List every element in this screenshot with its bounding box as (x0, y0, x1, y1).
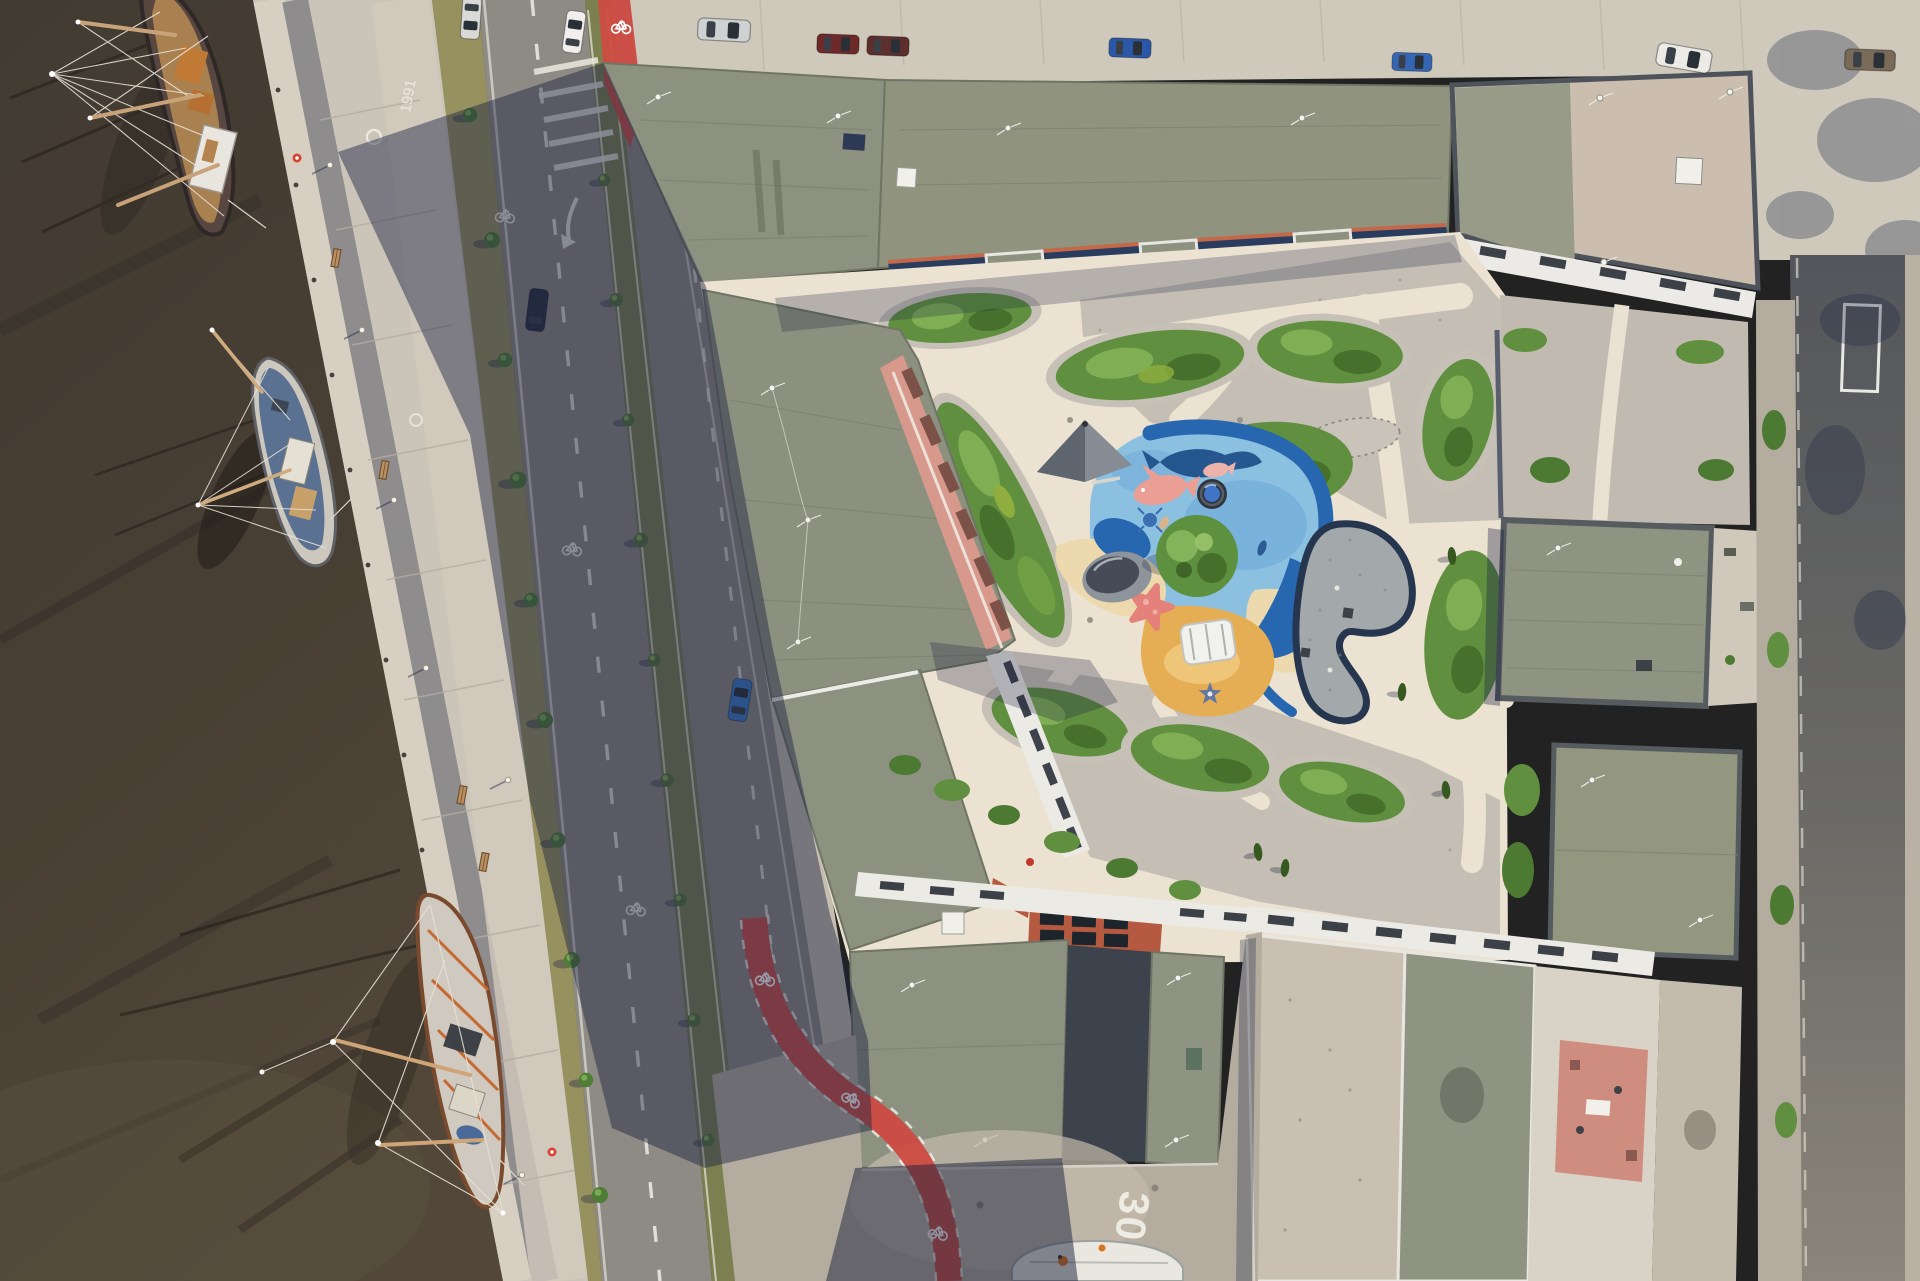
car-dark-red (817, 34, 860, 54)
manhole (1152, 1185, 1159, 1192)
roof-stain (1440, 1067, 1484, 1123)
gravel-roof (1248, 935, 1405, 1281)
roof-skylight (896, 167, 916, 187)
roof-box (1186, 1048, 1202, 1070)
building-center-right (1498, 520, 1712, 706)
climbing-frame (1179, 619, 1236, 666)
right-street (1756, 255, 1920, 1281)
bottom-right-cluster (1245, 906, 1742, 1281)
trampoline (1197, 479, 1227, 509)
aerial-photo: 1991 (0, 0, 1920, 1281)
aerial-photo-stage: 1991 (0, 0, 1920, 1281)
building-southeast (1550, 745, 1740, 958)
car-blue-parked (1392, 52, 1433, 71)
life-ring-post (293, 154, 302, 163)
car-blue-parked (1109, 38, 1152, 58)
roof-stain (1684, 1110, 1716, 1150)
green-roof-section (1455, 83, 1575, 268)
building-e (1146, 952, 1224, 1168)
hedge-southeast (1502, 764, 1540, 898)
right-column (1497, 295, 1772, 958)
pink-roof-terrace (1555, 1040, 1648, 1182)
speed-limit-marking: 30 (1106, 1189, 1159, 1245)
life-ring-post (548, 1148, 557, 1157)
right-sidewalk (1905, 255, 1920, 1281)
van-silver (697, 18, 751, 43)
roof-skylight (942, 912, 964, 934)
car-maroon (867, 36, 910, 56)
boat-mast (1099, 1245, 1106, 1252)
roof-box (842, 133, 865, 150)
roof-vent (1636, 660, 1652, 671)
van-brown (1844, 49, 1895, 72)
roof-skylight (1675, 157, 1702, 184)
building-top-right (1452, 73, 1758, 318)
car-silver-northbound (460, 0, 482, 40)
roof-dome (1674, 558, 1682, 566)
shaded-gap-roof (1062, 945, 1152, 1162)
shadow-plaza (826, 1158, 1078, 1281)
red-scooter (1026, 858, 1034, 866)
